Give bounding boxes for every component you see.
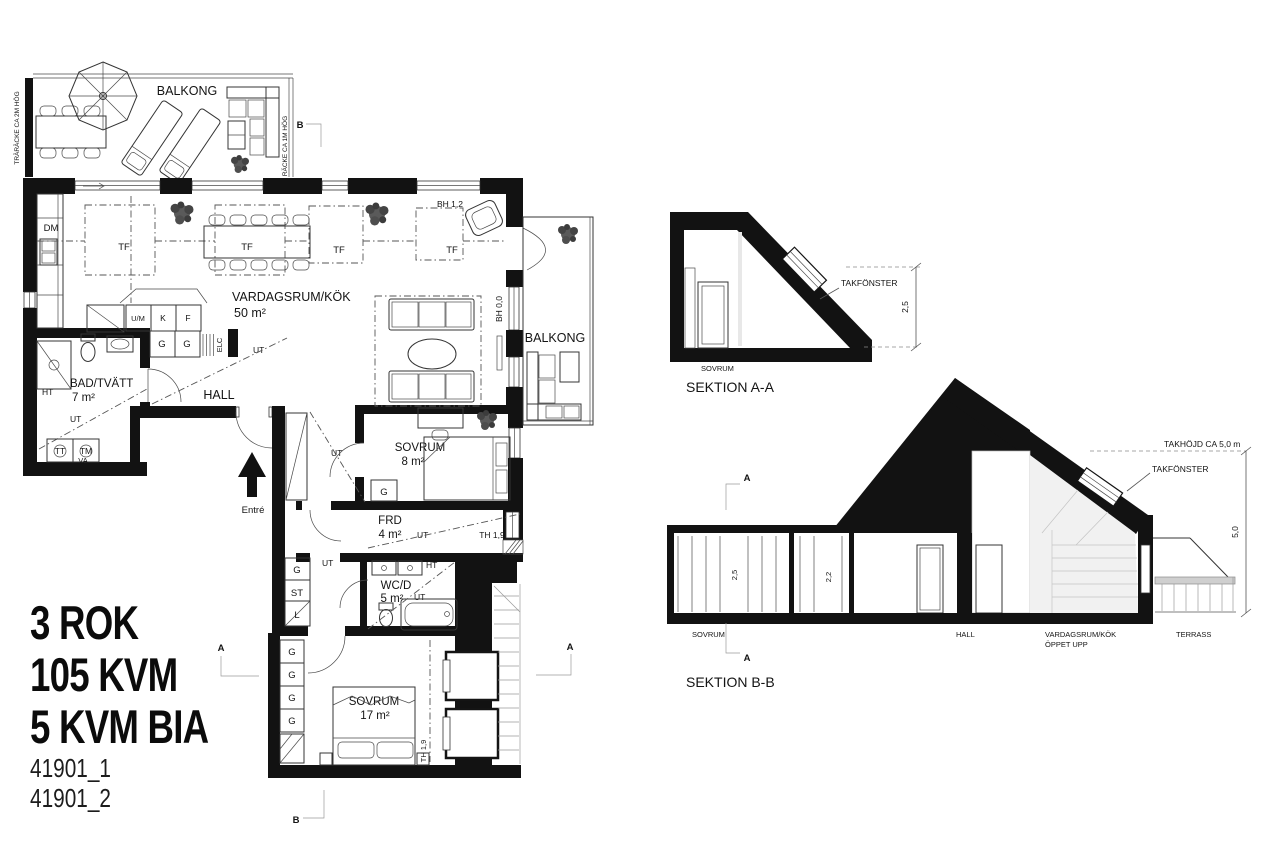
corner-sofa bbox=[527, 352, 581, 420]
room-height: 2,2 bbox=[824, 572, 833, 582]
section-marker-b-bottom: B bbox=[293, 790, 324, 826]
living-room: TF TF TF TF BH 1,2 BH 0,0 bbox=[37, 196, 546, 406]
window-height-label: BH 0,0 bbox=[494, 296, 504, 322]
bathroom-label: BAD/TVÄTT bbox=[70, 378, 133, 390]
section-b-room-bed: SOVRUM bbox=[692, 630, 725, 639]
closet-label: G bbox=[158, 339, 165, 350]
skylight-callout: TAKFÖNSTER bbox=[841, 278, 898, 288]
balcony-top-label: BALKONG bbox=[157, 84, 217, 98]
marker-b-label: B bbox=[297, 120, 304, 131]
section-b-title: SEKTION B-B bbox=[686, 674, 775, 690]
section-a-height: 2,5 bbox=[900, 301, 910, 313]
fridge-label: K bbox=[160, 313, 166, 323]
storage-room: FRD 4 m² UT TH 1,9 bbox=[310, 510, 520, 548]
section-marker-a-right: A bbox=[536, 642, 574, 675]
closet-label: G bbox=[288, 716, 295, 727]
living-room-area: 50 m² bbox=[234, 306, 266, 320]
marker-a-label: A bbox=[744, 473, 751, 484]
toilet bbox=[81, 343, 95, 362]
bedroom17-area: 17 m² bbox=[360, 710, 390, 722]
living-room-label: VARDAGSRUM/KÖK bbox=[232, 290, 351, 304]
frd-area: 4 m² bbox=[379, 529, 402, 541]
ut-label: UT bbox=[322, 558, 333, 568]
corner-sofa bbox=[227, 87, 279, 157]
skylight-callout: TAKFÖNSTER bbox=[1152, 464, 1209, 474]
ht-label: HT bbox=[42, 387, 53, 397]
closet-label: G bbox=[288, 693, 295, 704]
closet-label: G bbox=[183, 339, 190, 350]
closet-label: G bbox=[288, 647, 295, 658]
wc-label: WC/D bbox=[381, 580, 412, 592]
section-b-room-living: VARDAGSRUM/KÖK bbox=[1045, 630, 1116, 639]
tt-label: TT bbox=[55, 446, 65, 456]
dishwasher-label: DM bbox=[44, 223, 59, 234]
th-label: TH 1,9 bbox=[419, 740, 428, 763]
va-label: VA bbox=[78, 456, 87, 465]
entry-arrow-icon bbox=[238, 452, 266, 497]
th-label: TH 1,9 bbox=[479, 530, 505, 540]
railing-right-label: RÄCKE CA 1M HÖG bbox=[281, 116, 289, 176]
balcony-right: BALKONG bbox=[523, 217, 593, 425]
closets: G ST L UT bbox=[285, 558, 333, 626]
plan-id-2: 41901_2 bbox=[30, 783, 213, 813]
wc-shower-room: WC/D 5 m² HT UT bbox=[340, 560, 457, 630]
plan-id-1: 41901_1 bbox=[30, 753, 213, 783]
hall: HALL UT UT Entré bbox=[152, 338, 365, 516]
plan-rooms: 3 ROK bbox=[30, 597, 208, 649]
plan-secondary-area: 5 KVM BIA bbox=[30, 701, 208, 753]
skylight-label: TF bbox=[333, 245, 345, 256]
bathroom: BAD/TVÄTT 7 m² HT UT TT TM VA bbox=[37, 334, 181, 465]
ut-label: UT bbox=[414, 592, 425, 602]
section-b-room-hall: HALL bbox=[956, 630, 975, 639]
railing-left-label: TRÄRÄCKE CA 2M HÖG bbox=[13, 91, 21, 164]
l-label: L bbox=[294, 610, 299, 621]
roof-height-label: TAKHÖJD CA 5,0 m bbox=[1164, 439, 1240, 449]
st-label: ST bbox=[291, 588, 303, 599]
section-marker-b-top: B bbox=[297, 120, 321, 147]
window-height-label: BH 1,2 bbox=[437, 199, 463, 209]
frd-label: FRD bbox=[378, 515, 402, 527]
section-a-room: SOVRUM bbox=[701, 364, 734, 373]
room-height: 2,5 bbox=[730, 570, 739, 580]
freezer-label: F bbox=[185, 313, 190, 323]
elc-label: ELC bbox=[215, 337, 224, 352]
section-bb: TAKHÖJD CA 5,0 m 5,0 TAKFÖNSTER 2,5 2,2 … bbox=[667, 378, 1251, 690]
terrace bbox=[1153, 538, 1236, 612]
marker-b-label: B bbox=[293, 815, 300, 826]
toilet bbox=[380, 610, 393, 627]
marker-a-label: A bbox=[567, 642, 574, 653]
section-b-room-terrace: TERRASS bbox=[1176, 630, 1211, 639]
closet-label: G bbox=[293, 565, 300, 576]
skylight-label: TF bbox=[241, 242, 253, 253]
bathroom-area: 7 m² bbox=[72, 392, 95, 404]
section-b-height: 5,0 bbox=[1230, 526, 1240, 538]
title-block: 3 ROK 105 KVM 5 KVM BIA 41901_1 41901_2 bbox=[30, 597, 259, 813]
floorplan-sheet: TRÄRÄCKE CA 2M HÖG RÄCKE CA 1M HÖG BALKO… bbox=[0, 0, 1280, 861]
ut-label: UT bbox=[253, 345, 264, 355]
closet-label: G bbox=[288, 670, 295, 681]
parasol-icon bbox=[69, 62, 137, 130]
balcony-top: TRÄRÄCKE CA 2M HÖG RÄCKE CA 1M HÖG BALKO… bbox=[13, 62, 293, 184]
plan-area: 105 KVM bbox=[30, 649, 208, 701]
tm-label: TM bbox=[80, 446, 92, 456]
section-aa: 2,5 TAKFÖNSTER SOVRUM SEKTION A-A bbox=[670, 212, 921, 395]
entry-label: Entré bbox=[242, 505, 265, 516]
bedroom8-area: 8 m² bbox=[402, 456, 425, 468]
balcony-railing bbox=[25, 78, 33, 177]
ut-label: UT bbox=[70, 414, 81, 424]
skylight-label: TF bbox=[118, 242, 130, 253]
kitchen-sink bbox=[40, 239, 57, 265]
washer-label: U/M bbox=[131, 314, 145, 323]
ht-label: HT bbox=[426, 560, 437, 570]
hall-label: HALL bbox=[203, 388, 234, 402]
marker-a-label: A bbox=[744, 653, 751, 664]
section-a-title: SEKTION A-A bbox=[686, 379, 775, 395]
bedroom-17: G G G G SOVRUM 17 m² TH 1,9 bbox=[280, 636, 430, 765]
balcony-right-label: BALKONG bbox=[525, 331, 585, 345]
closet-label: G bbox=[380, 487, 387, 498]
sun-lounger bbox=[159, 108, 221, 184]
section-b-room-living2: ÖPPET UPP bbox=[1045, 640, 1088, 649]
armchair bbox=[464, 199, 505, 238]
bedroom8-label: SOVRUM bbox=[395, 442, 445, 454]
skylight-label: TF bbox=[446, 245, 458, 256]
